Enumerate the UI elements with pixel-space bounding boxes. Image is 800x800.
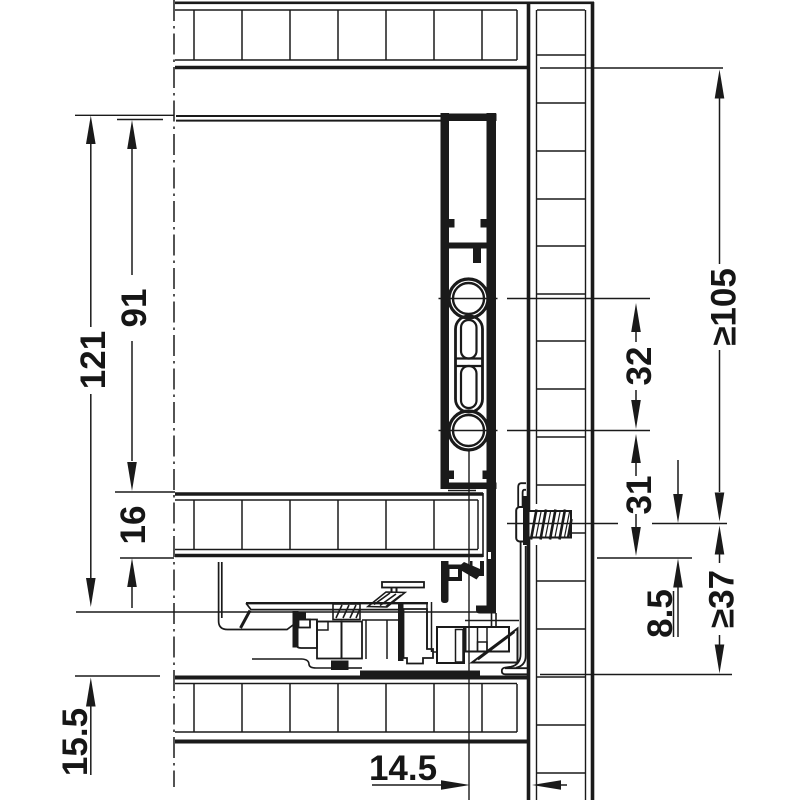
svg-text:16: 16 [114, 506, 153, 545]
svg-text:32: 32 [620, 347, 659, 386]
svg-text:91: 91 [115, 289, 154, 328]
svg-text:8.5: 8.5 [641, 589, 680, 638]
svg-text:≥37: ≥37 [703, 570, 742, 628]
svg-text:15.5: 15.5 [56, 708, 95, 776]
svg-text:≥105: ≥105 [705, 268, 744, 346]
svg-text:121: 121 [74, 331, 113, 389]
svg-text:14.5: 14.5 [369, 749, 437, 788]
svg-text:31: 31 [620, 476, 659, 515]
